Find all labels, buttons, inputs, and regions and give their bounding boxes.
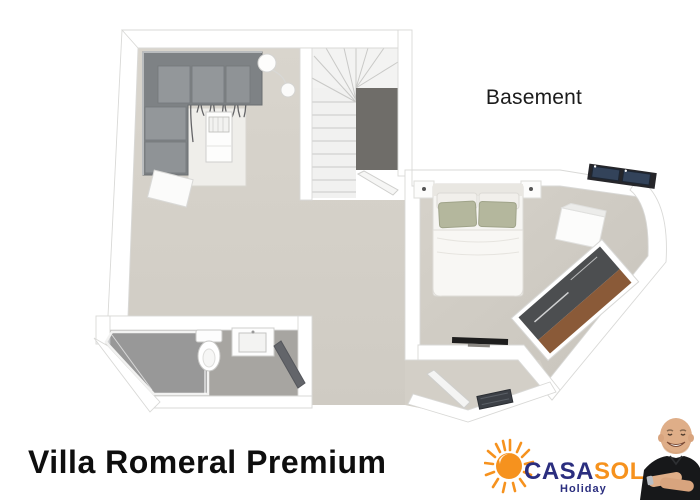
stair-door bbox=[358, 171, 398, 195]
casasol-logo: CASASOL Holiday bbox=[484, 436, 644, 498]
coffee-table bbox=[206, 112, 232, 162]
stairs-right-wall bbox=[398, 30, 412, 176]
bathroom-right-wall bbox=[298, 316, 312, 408]
winder-stairs bbox=[312, 48, 398, 198]
bathroom-top-wall bbox=[100, 316, 312, 330]
brand-casa: CASA bbox=[524, 458, 594, 485]
washbasin bbox=[232, 328, 274, 356]
agent-photo bbox=[634, 414, 700, 500]
top-wall bbox=[122, 30, 410, 48]
floor-label: Basement bbox=[464, 86, 604, 110]
double-bed bbox=[414, 181, 541, 296]
stairs-left-wall bbox=[300, 48, 312, 200]
page: Basement Villa Romeral Premium bbox=[0, 0, 700, 500]
page-title: Villa Romeral Premium bbox=[28, 444, 387, 481]
stair-void bbox=[356, 88, 398, 170]
toilet bbox=[196, 330, 222, 371]
brand-wordmark: CASASOL bbox=[524, 458, 645, 486]
floor-plan bbox=[0, 0, 700, 500]
bathroom-bottom-wall bbox=[148, 396, 312, 408]
brand-tagline: Holiday bbox=[560, 483, 607, 495]
